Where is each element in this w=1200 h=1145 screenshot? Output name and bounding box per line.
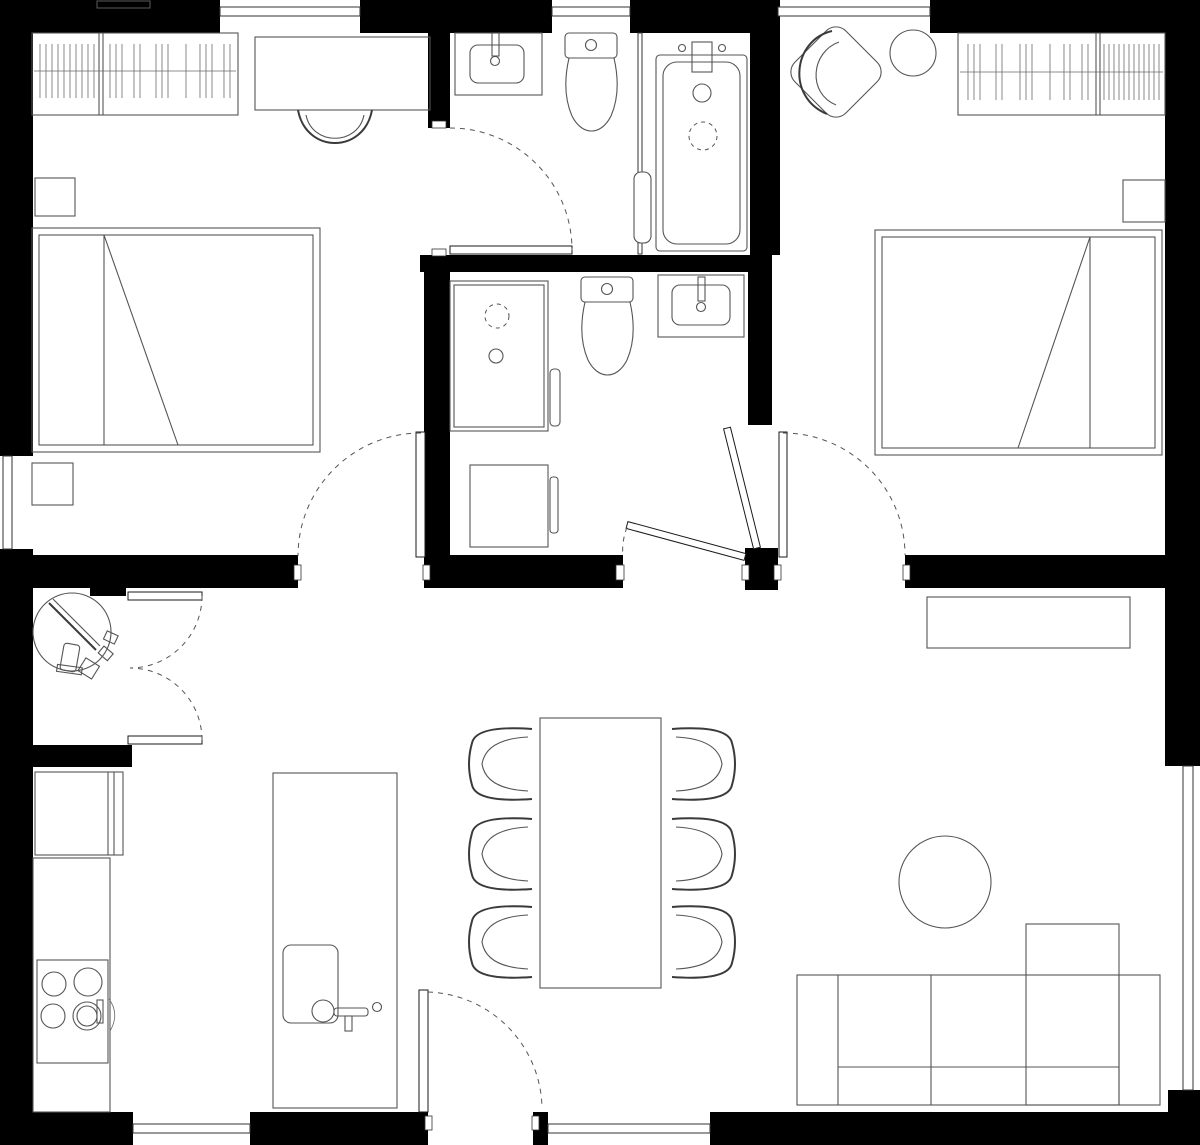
interior-walls (0, 33, 1170, 767)
bed (875, 230, 1162, 455)
side-table (890, 30, 936, 76)
shower (450, 281, 560, 431)
stool (78, 658, 100, 679)
dining-chair (672, 906, 735, 977)
dining-chair (469, 818, 532, 889)
kitchen (33, 772, 397, 1112)
wardrobe (958, 33, 1165, 115)
entrance-door-leaf (419, 990, 428, 1112)
bathroom1-door-leaf (450, 246, 572, 254)
kitchen-island (273, 773, 397, 1108)
window-left (3, 456, 12, 549)
vanity-sink (658, 275, 744, 337)
window-bottom-center (548, 1124, 710, 1133)
dining-area (469, 718, 735, 988)
bathroom-1 (450, 33, 747, 254)
bedroom2-door-leaf (779, 432, 787, 557)
dining-chair (469, 728, 532, 799)
bathroom2-door-swing-arc (623, 527, 627, 556)
sofa (797, 924, 1160, 1105)
faucet-base (312, 1000, 334, 1022)
nightstand (1123, 180, 1165, 222)
living-room (797, 597, 1160, 1105)
washing-machine (470, 465, 558, 547)
kitchen-counter (33, 858, 110, 1112)
sofa-chaise (1026, 924, 1119, 1105)
window-top-center (552, 7, 630, 16)
window-bottom-left (133, 1124, 250, 1133)
tub-faucet (692, 42, 712, 72)
bedroom-1 (32, 33, 430, 505)
bathroom2-door-leaf (626, 522, 746, 561)
dining-chair (672, 818, 735, 889)
armchair (785, 21, 887, 123)
door-leaf (724, 427, 761, 549)
bedroom2-door-swing-arc (783, 433, 905, 555)
bedroom1-door-leaf (416, 432, 425, 557)
bed (32, 228, 320, 452)
vanity-sink (455, 33, 542, 95)
shower-head-dashed (689, 122, 717, 150)
floor-plan (0, 0, 1200, 1145)
entrance-door-swing-arc (428, 992, 542, 1108)
entrance-door (419, 990, 542, 1112)
dining-chair (469, 906, 532, 977)
tub-drain (693, 84, 711, 102)
nightstand (35, 178, 75, 216)
round-table (33, 593, 111, 671)
sideboard (927, 597, 1130, 648)
closet-door-leaf-bottom (128, 736, 202, 744)
bathroom-2 (450, 275, 746, 560)
toilet (581, 277, 633, 375)
closet-door-leaf-top (128, 592, 202, 600)
dining-chair (672, 728, 735, 799)
shower-drain (489, 349, 503, 363)
shower-head-dashed (485, 304, 509, 328)
bedroom-2 (785, 21, 1165, 455)
toilet (565, 33, 617, 131)
island-sink (283, 945, 338, 1023)
bathroom1-door-swing-arc (450, 128, 572, 250)
desk (255, 37, 430, 110)
wardrobe (32, 33, 238, 115)
laptop (60, 643, 80, 672)
shower-door-handle (550, 369, 560, 426)
nightstand (32, 463, 73, 505)
tall-cabinet (35, 772, 123, 855)
closet-door-swing-arc (130, 668, 202, 740)
window-top-right (778, 7, 930, 16)
towel-bar (634, 172, 651, 243)
floor-plan-svg (0, 0, 1200, 1145)
window-top-left (220, 7, 360, 16)
stove (37, 960, 115, 1063)
window-right (1183, 766, 1193, 1090)
hall-doors (298, 427, 905, 557)
coffee-table (899, 836, 991, 928)
bathtub (656, 42, 747, 251)
closet (33, 592, 202, 744)
dining-table (540, 718, 661, 988)
closet-door-swing-arc (130, 596, 202, 668)
desk-chair (298, 110, 372, 143)
faucet-spout (334, 1008, 368, 1016)
